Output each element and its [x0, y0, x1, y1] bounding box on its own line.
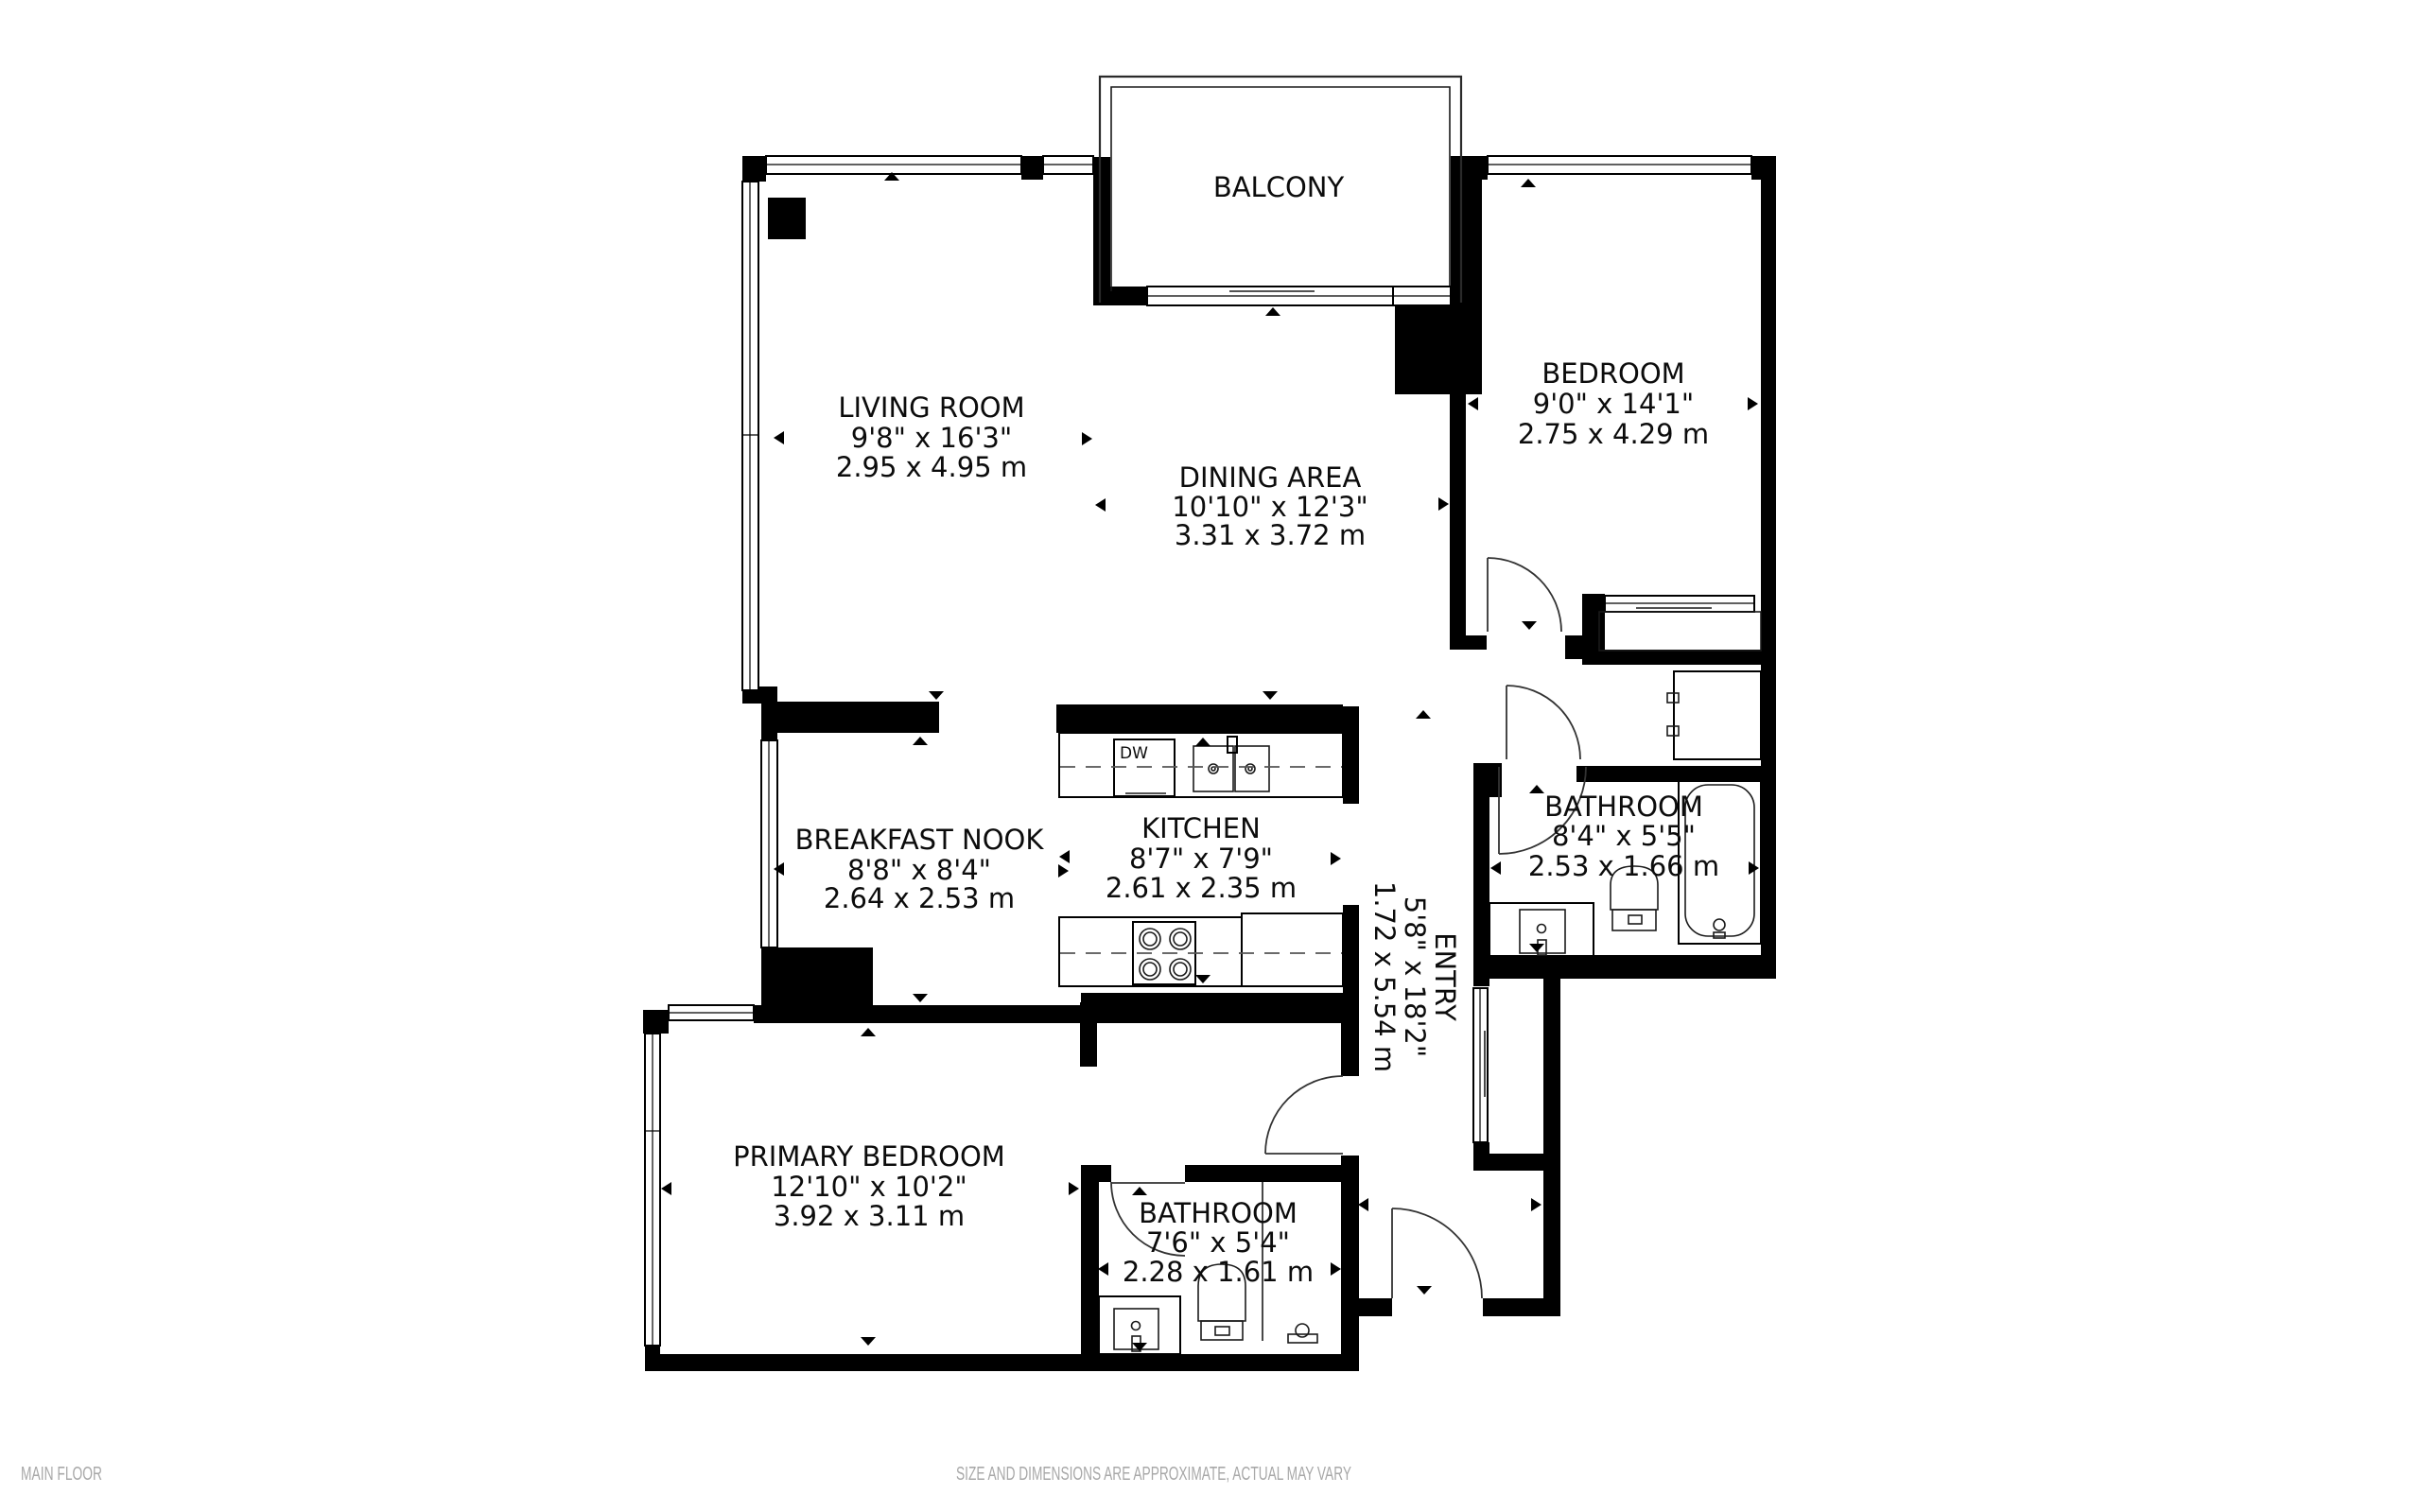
balcony-sliding-door [1147, 287, 1393, 305]
primary-bedroom-label: PRIMARY BEDROOM [733, 1140, 1005, 1173]
bedroom-closet-sliding-door [1605, 596, 1754, 612]
bathroom-ensuite-dim-metric: 2.28 x 1.61 m [1123, 1256, 1314, 1288]
living-room-dim-metric: 2.95 x 4.95 m [836, 451, 1027, 483]
disclaimer-text: SIZE AND DIMENSIONS ARE APPROXIMATE, ACT… [956, 1464, 1351, 1485]
bathroom-main-label: BATHROOM [1544, 791, 1703, 823]
bathroom-main-dim-metric: 2.53 x 1.66 m [1528, 850, 1719, 882]
breakfast-nook-left-window [761, 740, 777, 947]
kitchen-dim-metric: 2.61 x 2.35 m [1106, 872, 1297, 904]
dishwasher-label: DW [1120, 744, 1148, 763]
primary-bedroom-dim-imperial: 12'10" x 10'2" [771, 1171, 967, 1203]
living-room-dim-imperial: 9'8" x 16'3" [851, 422, 1012, 454]
entry-dim-imperial: 5'8" x 18'2" [1399, 896, 1431, 1057]
kitchen-lower-counter-right [1242, 913, 1343, 986]
bedroom-top-window [1488, 156, 1751, 174]
dining-area-dim-imperial: 10'10" x 12'3" [1172, 491, 1367, 523]
laundry-closet [1667, 671, 1761, 759]
dining-area-dim-metric: 3.31 x 3.72 m [1175, 519, 1366, 551]
floor-plan-canvas: DW [0, 0, 2421, 1512]
bedroom-dim-imperial: 9'0" x 14'1" [1533, 388, 1694, 420]
living-room-top-window [766, 156, 1093, 174]
breakfast-nook-dim-metric: 2.64 x 2.53 m [824, 882, 1015, 914]
floor-plan-page: DW [0, 0, 2421, 1512]
breakfast-nook-dim-imperial: 8'8" x 8'4" [847, 854, 991, 886]
entry-dim-metric: 1.72 x 5.54 m [1368, 881, 1401, 1072]
fireplace-column [768, 198, 806, 239]
footer: MAIN FLOOR SIZE AND DIMENSIONS ARE APPRO… [21, 1464, 1351, 1485]
entry-front-door [1392, 1208, 1482, 1298]
bathroom-ensuite-label: BATHROOM [1139, 1197, 1298, 1229]
bedroom-dim-metric: 2.75 x 4.29 m [1518, 418, 1709, 450]
bedroom-label: BEDROOM [1541, 357, 1684, 390]
primary-bedroom-dim-metric: 3.92 x 3.11 m [774, 1200, 965, 1232]
entry-label-group: ENTRY 5'8" x 18'2" 1.72 x 5.54 m [1368, 881, 1461, 1072]
hall-door [1507, 686, 1580, 759]
primary-suite-door [1265, 1076, 1343, 1154]
sink-main [1489, 903, 1594, 957]
bedroom-closet [1599, 612, 1761, 651]
entry-label: ENTRY [1429, 932, 1461, 1021]
floor-title: MAIN FLOOR [21, 1464, 102, 1485]
bathroom-main-dim-imperial: 8'4" x 5'5" [1552, 820, 1696, 852]
breakfast-nook-label: BREAKFAST NOOK [795, 824, 1045, 856]
primary-bedroom-top-window [669, 1005, 754, 1020]
bedroom-door [1488, 558, 1561, 632]
balcony-label: BALCONY [1213, 171, 1345, 203]
living-room-label: LIVING ROOM [838, 391, 1024, 424]
bathroom-ensuite-dim-imperial: 7'6" x 5'4" [1146, 1226, 1290, 1259]
kitchen-label: KITCHEN [1141, 812, 1261, 844]
dining-area-label: DINING AREA [1179, 461, 1362, 494]
living-room-left-window [742, 182, 758, 690]
balcony-side-window [1393, 287, 1451, 305]
primary-bedroom-left-window [645, 1034, 660, 1346]
entry-closet-sliding-door [1473, 988, 1488, 1142]
kitchen-dim-imperial: 8'7" x 7'9" [1129, 843, 1273, 875]
